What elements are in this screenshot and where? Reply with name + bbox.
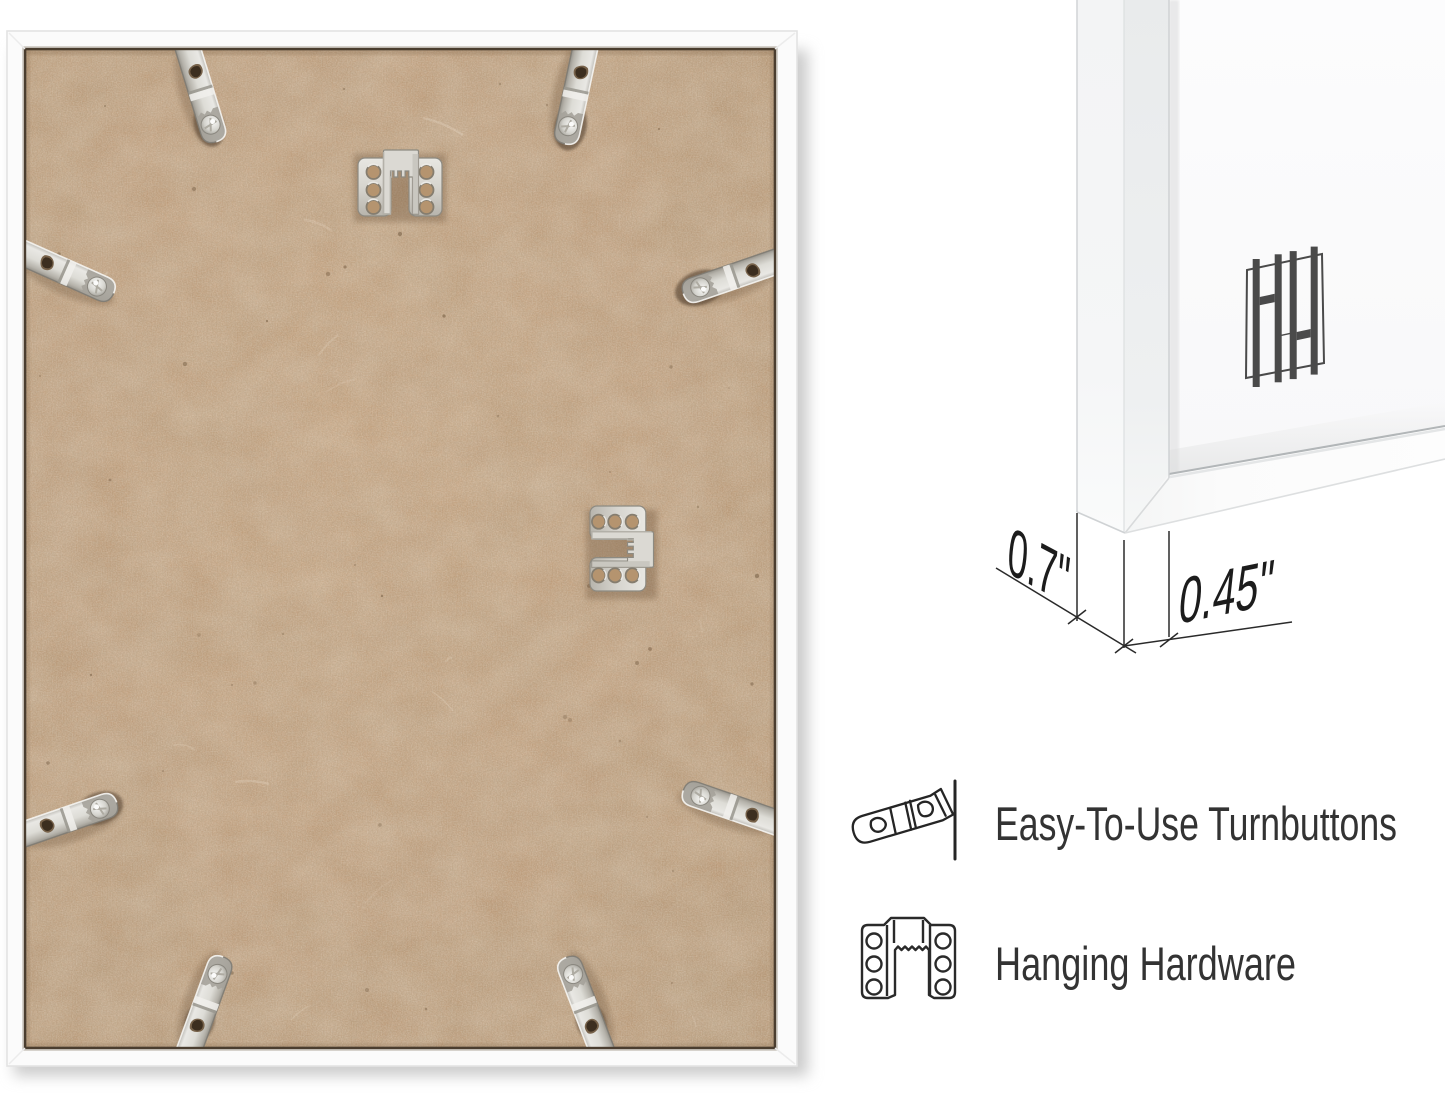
svg-text:Hanging Hardware: Hanging Hardware	[995, 937, 1296, 990]
svg-text:Easy-To-Use Turnbuttons: Easy-To-Use Turnbuttons	[995, 797, 1397, 850]
